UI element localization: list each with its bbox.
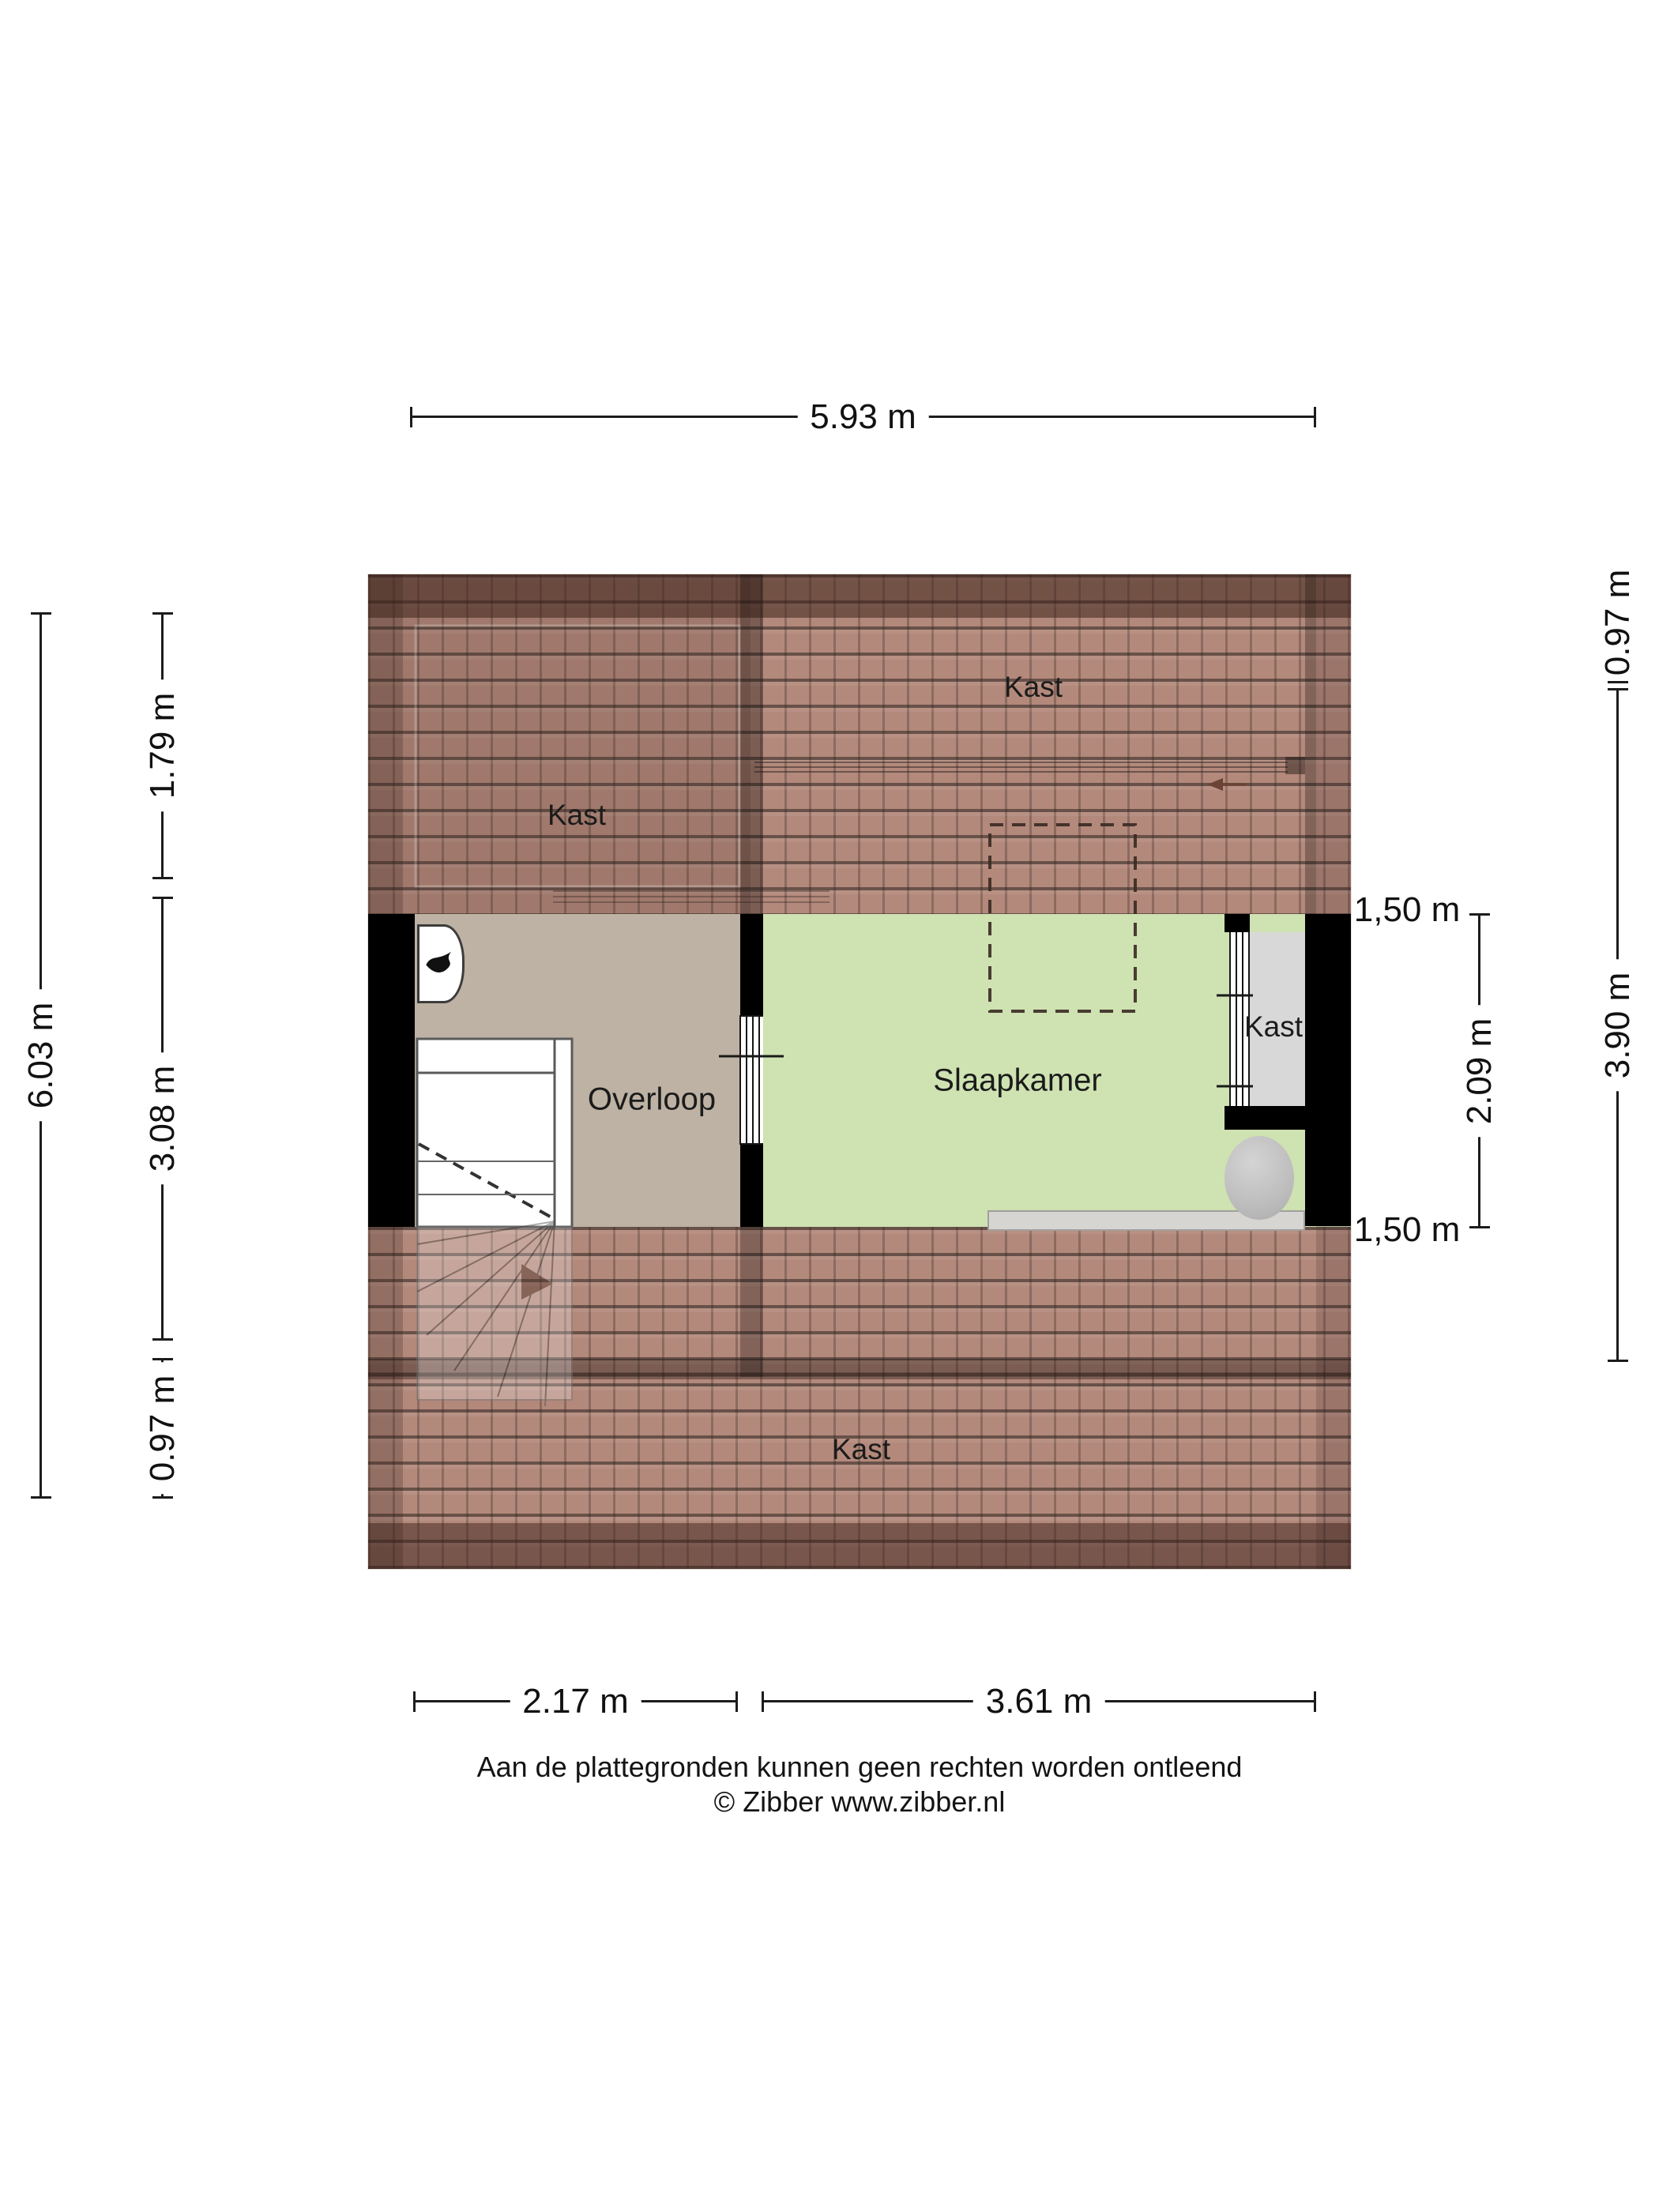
plan-linework: [368, 574, 1351, 1569]
floorplan-drawing: Kast Kast Overloop Slaapkamer Kast Kast: [368, 574, 1351, 1569]
footer-copyright: © Zibber www.zibber.nl: [714, 1785, 1006, 1819]
dimension-bottom-left-label: 2.17 m: [510, 1682, 641, 1721]
dimension-left-lower-label: 0.97 m: [143, 1363, 182, 1495]
room-label-slaapkamer: Slaapkamer: [933, 1063, 1101, 1099]
dimension-top-width: 5.93 m: [411, 416, 1315, 418]
dimension-bottom-right-label: 3.61 m: [973, 1682, 1105, 1721]
dimension-right-total: 3.90 m: [1616, 689, 1619, 1361]
roof-line-cluster-right: [754, 762, 1288, 772]
dashed-headroom-rect: [990, 825, 1135, 1011]
dimension-top-width-label: 5.93 m: [797, 397, 929, 437]
staircase-under-roof: [417, 1221, 572, 1406]
room-label-kast-closet: Kast: [1244, 1010, 1303, 1044]
dimension-left-upper: 1.79 m: [161, 613, 164, 878]
footer-disclaimer: Aan de plattegronden kunnen geen rechten…: [477, 1751, 1243, 1784]
room-label-overloop: Overloop: [588, 1082, 716, 1118]
dimension-right-room: 2.09 m: [1478, 914, 1480, 1228]
height-marker-top: 1,50 m: [1354, 890, 1461, 930]
dimension-right-upper-label: 0.97 m: [1598, 557, 1638, 689]
dimension-right-room-label: 2.09 m: [1460, 1005, 1499, 1137]
dimension-bottom-left: 2.17 m: [414, 1700, 737, 1702]
dimension-right-upper: 0.97 m: [1616, 562, 1619, 683]
dimension-left-middle-label: 3.08 m: [143, 1053, 182, 1185]
roof-line-block: [1285, 757, 1305, 774]
room-label-kast-top-right: Kast: [1004, 671, 1063, 704]
floorplan-page: Kast Kast Overloop Slaapkamer Kast Kast …: [0, 0, 1659, 2212]
dimension-left-upper-label: 1.79 m: [143, 680, 182, 812]
height-marker-bottom: 1,50 m: [1354, 1210, 1461, 1250]
dimension-left-total: 6.03 m: [39, 613, 42, 1498]
dimension-bottom-right: 3.61 m: [762, 1700, 1315, 1702]
dimension-left-total-label: 6.03 m: [21, 990, 61, 1122]
dimension-left-lower: 0.97 m: [161, 1359, 164, 1498]
roof-arrow-icon: [1207, 778, 1247, 791]
dimension-right-total-label: 3.90 m: [1598, 959, 1638, 1091]
roof-line-cluster-left: [553, 891, 829, 902]
dimension-left-middle: 3.08 m: [161, 897, 164, 1340]
staircase: [417, 1039, 572, 1227]
room-label-kast-bottom: Kast: [832, 1433, 890, 1466]
kast-area-frame: [416, 626, 739, 886]
room-label-kast-top-left: Kast: [547, 799, 606, 832]
